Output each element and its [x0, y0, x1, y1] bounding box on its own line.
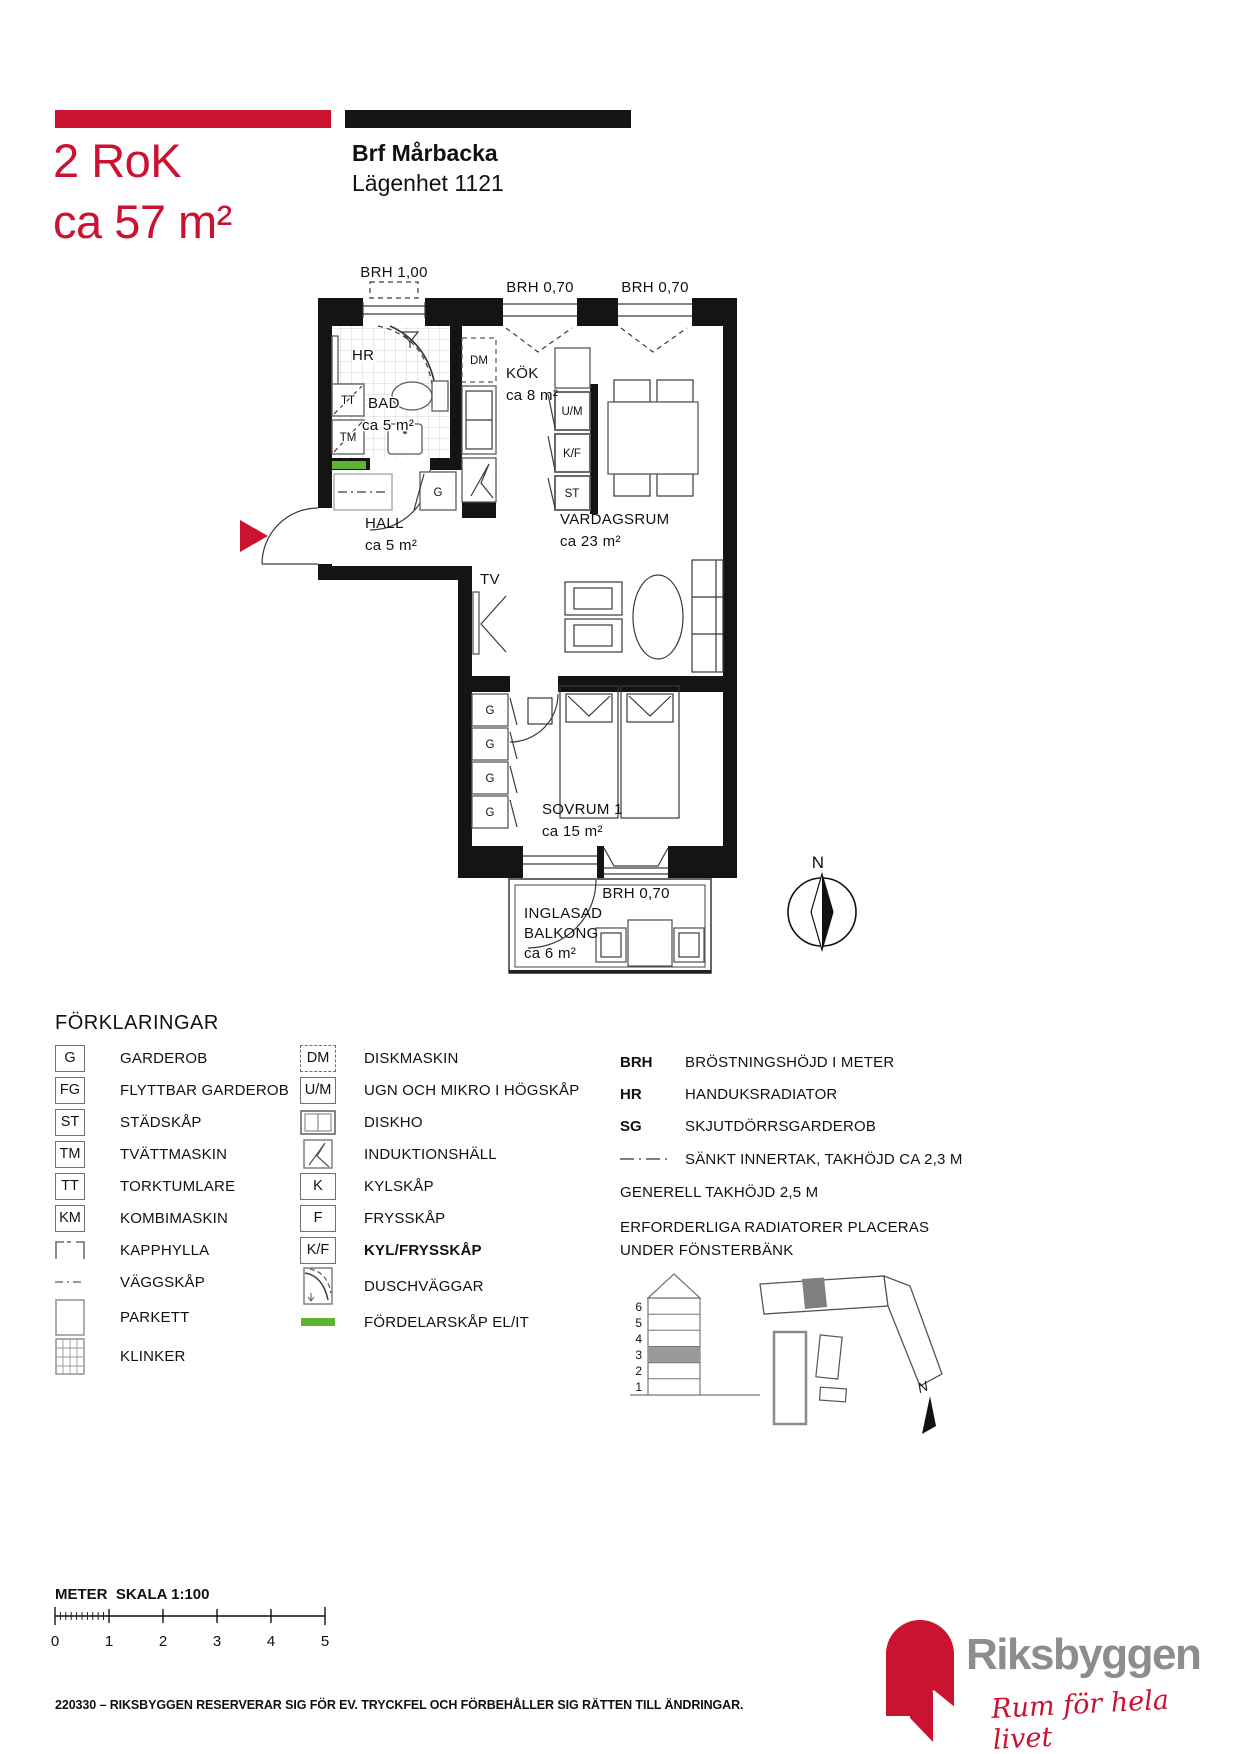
scale-tick: 3: [213, 1633, 221, 1650]
towel-radiator: [332, 336, 338, 390]
floor-number: 5: [635, 1316, 642, 1330]
apartment-location-marker: [802, 1278, 827, 1310]
dining-set: [608, 380, 698, 496]
kapphylla-icon: [55, 1239, 85, 1261]
floor-number: 1: [635, 1380, 642, 1394]
scale-ruler: 0 1 2 3 4 5: [47, 1606, 347, 1656]
sankt-innertak-line: [620, 1154, 672, 1164]
disclaimer-text: 220330 – RIKSBYGGEN RESERVERAR SIG FÖR E…: [55, 1698, 743, 1712]
legend-row: SG SKJUTDÖRRSGARDEROB: [620, 1110, 963, 1142]
radiator-note: ERFORDERLIGA RADIATORER PLACERAS UNDER F…: [620, 1217, 963, 1262]
wardrobe-label: G: [486, 705, 495, 717]
floor-number: 4: [635, 1332, 642, 1346]
dm-label: DM: [470, 355, 488, 367]
project-name: Brf Mårbacka: [352, 139, 504, 169]
floor-plan-drawing: HR TT TM BAD ca 5 m² G: [230, 262, 870, 1002]
legend-column-1: G GARDEROB FG FLYTTBAR GARDEROB ST STÄDS…: [55, 1042, 289, 1376]
balcony-furniture: [596, 920, 704, 966]
toilet: [392, 381, 448, 411]
stadskap-symbol: ST: [55, 1109, 85, 1136]
unit-title: 2 RoK ca 57 m²: [53, 130, 232, 252]
livingroom-furniture: [565, 560, 723, 672]
wardrobe-label: G: [486, 773, 495, 785]
highlighted-floor-band: [648, 1347, 700, 1363]
riksbyggen-logo: Riksbyggen Rum för hela livet: [880, 1612, 1220, 1752]
ugn-mikro-symbol: U/M: [300, 1077, 336, 1104]
tt-label: TT: [341, 395, 355, 407]
scale-tick: 1: [105, 1633, 113, 1650]
room-area-kok: ca 8 m²: [506, 387, 558, 404]
legend-row: PARKETT: [55, 1298, 289, 1337]
scale-tick: 0: [51, 1633, 59, 1650]
tm-label: TM: [340, 432, 357, 444]
legend-row: TT TORKTUMLARE: [55, 1170, 289, 1202]
legend-row: HR HANDUKSRADIATOR: [620, 1078, 963, 1110]
st-label: ST: [565, 488, 580, 500]
floor-number: 3: [635, 1348, 642, 1362]
parkett-icon: [55, 1299, 85, 1336]
legend-row: BRH BRÖSTNINGSHÖJD I METER: [620, 1046, 963, 1078]
kitchen-sink: [462, 386, 496, 454]
room-area-hall: ca 5 m²: [365, 537, 417, 554]
room-label-balkong-1: INGLASAD: [524, 905, 602, 922]
kylskap-symbol: K: [300, 1173, 336, 1200]
brh-label-bathroom: BRH 1,00: [360, 264, 427, 281]
wardrobe-label: G: [486, 739, 495, 751]
coffee-table: [633, 575, 683, 659]
room-label-sovrum: SOVRUM 1: [542, 801, 623, 818]
room-label-bad: BAD: [368, 395, 400, 412]
flyttbar-garderob-symbol: FG: [55, 1077, 85, 1104]
tv-symbol: [473, 592, 506, 654]
legend-row: ST STÄDSKÅP: [55, 1106, 289, 1138]
brh-label-kitchen: BRH 0,70: [506, 279, 573, 296]
distribution-cabinet-el-it: [332, 461, 366, 469]
frysskap-symbol: F: [300, 1205, 336, 1232]
room-label-vardagsrum: VARDAGSRUM: [560, 511, 669, 528]
armchair: [565, 619, 622, 652]
tall-cabinets: [548, 348, 590, 510]
ceiling-height-note: GENERELL TAKHÖJD 2,5 M: [620, 1184, 963, 1201]
room-area-balkong: ca 6 m²: [524, 945, 576, 962]
legend-column-3: BRH BRÖSTNINGSHÖJD I METER HR HANDUKSRAD…: [620, 1046, 963, 1262]
torktumlare-symbol: TT: [55, 1173, 85, 1200]
brh-term: BRH: [620, 1054, 685, 1071]
duschvaggar-icon: [300, 1267, 336, 1305]
legend-row: FÖRDELARSKÅP EL/IT: [300, 1306, 579, 1338]
legend-row: G GARDEROB: [55, 1042, 289, 1074]
legend-row: KM KOMBIMASKIN: [55, 1202, 289, 1234]
scale-tick: 2: [159, 1633, 167, 1650]
diskmaskin-symbol: DM: [300, 1045, 336, 1072]
legend-row: VÄGGSKÅP: [55, 1266, 289, 1298]
coat-shelf: [334, 474, 392, 510]
legend-row: K/F KYL/FRYSSKÅP: [300, 1234, 579, 1266]
garderob-symbol: G: [55, 1045, 85, 1072]
legend-row: DUSCHVÄGGAR: [300, 1266, 579, 1306]
legend-title: FÖRKLARINGAR: [55, 1012, 219, 1035]
kombimaskin-symbol: KM: [55, 1205, 85, 1232]
black-accent-bar: [345, 110, 631, 128]
floor-number: 2: [635, 1364, 642, 1378]
project-block: Brf Mårbacka Lägenhet 1121: [352, 139, 504, 199]
legend-row: SÄNKT INNERTAK, TAKHÖJD CA 2,3 M: [620, 1142, 963, 1176]
room-label-kok: KÖK: [506, 364, 539, 382]
legend-column-2: DM DISKMASKIN U/M UGN OCH MIKRO I HÖGSKÅ…: [300, 1042, 579, 1338]
tvattmaskin-symbol: TM: [55, 1141, 85, 1168]
legend-row: FG FLYTTBAR GARDEROB: [55, 1074, 289, 1106]
scale-tick: 5: [321, 1633, 329, 1650]
legend-row: U/M UGN OCH MIKRO I HÖGSKÅP: [300, 1074, 579, 1106]
room-area-bad: ca 5 m²: [362, 417, 414, 434]
induktionshall-icon: [300, 1139, 336, 1169]
hr-label: HR: [352, 347, 374, 364]
entrance-door: [262, 508, 318, 564]
compass: [788, 874, 856, 950]
brh-label-bedroom: BRH 0,70: [602, 885, 669, 902]
floor-number: 6: [635, 1300, 642, 1314]
klinker-icon: [55, 1338, 85, 1375]
induction-hob: [462, 458, 496, 502]
sg-term: SG: [620, 1118, 685, 1135]
room-area-vardagsrum: ca 23 m²: [560, 533, 621, 550]
legend-row: K KYLSKÅP: [300, 1170, 579, 1202]
logo-wordmark: Riksbyggen: [966, 1630, 1200, 1680]
diskho-icon: [300, 1109, 336, 1136]
legend-row: F FRYSSKÅP: [300, 1202, 579, 1234]
bathroom: HR TT TM BAD ca 5 m²: [332, 326, 450, 458]
scale-label: METER SKALA 1:100: [55, 1586, 209, 1603]
brh-label-livingroom: BRH 0,70: [621, 279, 688, 296]
compass-north-label: N: [812, 853, 825, 872]
site-plan-north-arrow: [922, 1396, 936, 1434]
unit-type: 2 RoK: [53, 130, 232, 191]
sofa: [692, 560, 723, 672]
vaggskap-icon: [55, 1277, 85, 1287]
unit-area: ca 57 m²: [53, 191, 232, 252]
wardrobe-label: G: [486, 807, 495, 819]
room-label-hall: HALL: [365, 515, 404, 532]
scale-tick: 4: [267, 1633, 275, 1650]
logo-tagline: Rum för hela livet: [991, 1682, 1222, 1754]
apartment-number: Lägenhet 1121: [352, 169, 504, 199]
armchair: [565, 582, 622, 615]
bedroom-door-arc: [510, 694, 558, 742]
legend-row: DM DISKMASKIN: [300, 1042, 579, 1074]
tv-label: TV: [480, 571, 500, 588]
bedroom-wardrobes: [472, 694, 517, 828]
fordelarskap-icon: [300, 1317, 336, 1327]
legend-row: KLINKER: [55, 1337, 289, 1376]
red-accent-bar: [55, 110, 331, 128]
kf-label: K/F: [563, 448, 581, 460]
room-area-sovrum: ca 15 m²: [542, 823, 603, 840]
room-label-balkong-2: BALKONG: [524, 925, 599, 942]
hr-term: HR: [620, 1086, 685, 1103]
building-section-diagram: 6 5 4 3 2 1: [612, 1262, 762, 1407]
legend-row: DISKHO: [300, 1106, 579, 1138]
legend-row: TM TVÄTTMASKIN: [55, 1138, 289, 1170]
legend-row: INDUKTIONSHÄLL: [300, 1138, 579, 1170]
kyl-frys-symbol: K/F: [300, 1237, 336, 1264]
legend-row: KAPPHYLLA: [55, 1234, 289, 1266]
floorplan-page: 2 RoK ca 57 m² Brf Mårbacka Lägenhet 112…: [0, 0, 1240, 1754]
bedside-table: [528, 698, 552, 724]
hall-wardrobe-label: G: [434, 487, 443, 499]
site-plan-diagram: N: [752, 1262, 962, 1472]
riksbyggen-mark-icon: [880, 1612, 960, 1747]
um-label: U/M: [561, 406, 582, 418]
double-bed: [560, 686, 679, 818]
